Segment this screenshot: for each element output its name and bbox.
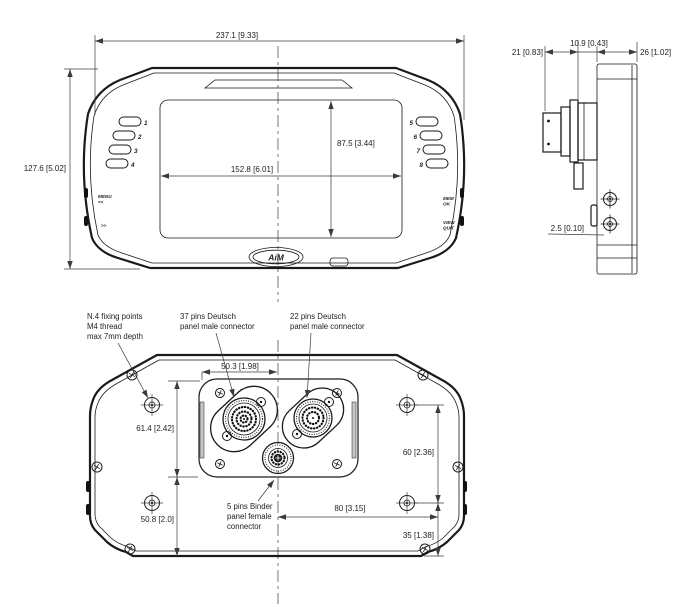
plate-screw (331, 387, 343, 399)
dim-fixing-right-horizontal: 80 [3.15] (334, 504, 365, 513)
svg-text:max 7mm depth: max 7mm depth (87, 332, 143, 341)
rear-dimensions: 50.3 [1.98] 61.4 [2.42] 50.8 [2.0] 60 [2… (136, 362, 444, 556)
fixing-point (141, 492, 163, 514)
plate-screw (331, 458, 343, 470)
bezel-label-quit: QUIT (443, 226, 455, 231)
technical-drawing: 1 2 3 4 5 6 7 8 MENU << >> MEM OK VIEW Q… (0, 0, 676, 607)
case-screw (125, 368, 139, 382)
front-dimensions: 237.1 [9.33] 127.6 [5.02] 152.8 [6.01] 8… (24, 31, 464, 269)
dim-overall-width: 237.1 [9.33] (216, 31, 258, 40)
bezel-label-menu-arrows: << (98, 200, 104, 205)
plate-screw (214, 387, 226, 399)
right-edge-button-icon (463, 504, 467, 515)
button-1-label: 1 (144, 120, 148, 127)
top-slot (205, 80, 352, 88)
button-8 (426, 159, 448, 168)
side-body (597, 64, 637, 274)
dim-fixing-bottom: 35 [1.38] (403, 531, 434, 540)
fixing-point (141, 394, 163, 416)
button-7 (423, 145, 445, 154)
svg-text:panel male connector: panel male connector (290, 322, 365, 331)
left-edge-button-icon (86, 481, 90, 492)
dim-connector-offset: 50.3 [1.98] (221, 362, 259, 371)
bezel-label-view: VIEW (443, 220, 455, 225)
left-edge-button-icon (86, 504, 90, 515)
light-sensor (330, 258, 348, 266)
bezel-label-ok: OK (443, 202, 451, 207)
svg-text:panel female: panel female (227, 512, 272, 521)
case-screw (418, 542, 432, 556)
bezel-label-menu: MENU (98, 194, 112, 199)
side-connector-profile (543, 100, 597, 189)
note-deutsch-37: 37 pins Deutsch (180, 312, 236, 321)
svg-text:M4 thread: M4 thread (87, 322, 122, 331)
dim-fixing-right-vertical: 60 [2.36] (403, 448, 434, 457)
svg-text:connector: connector (227, 522, 262, 531)
dim-fixing-upper: 61.4 [2.42] (136, 424, 174, 433)
bezel-label-next-arrows: >> (101, 223, 107, 228)
note-binder-5: 5 pins Binder (227, 502, 273, 511)
button-5 (416, 117, 438, 126)
button-3-label: 3 (134, 148, 138, 155)
button-3 (109, 145, 131, 154)
dim-side-mid: 10.9 [0.43] (570, 39, 608, 48)
aim-logo: AiM (249, 248, 303, 267)
button-5-label: 5 (409, 120, 413, 127)
front-view: 1 2 3 4 5 6 7 8 MENU << >> MEM OK VIEW Q… (84, 68, 464, 268)
button-2-label: 2 (137, 134, 142, 141)
right-edge-button-icon (460, 188, 464, 198)
display-screen (160, 100, 402, 238)
note-fixing-points: N.4 fixing points (87, 312, 143, 321)
case-screw (90, 460, 104, 474)
button-8-label: 8 (419, 162, 423, 169)
side-view (543, 64, 637, 274)
svg-text:panel male connector: panel male connector (180, 322, 255, 331)
dim-screen-width: 152.8 [6.01] (231, 165, 273, 174)
dim-screen-height: 87.5 [3.44] (337, 139, 375, 148)
front-inner-line (90, 73, 457, 263)
plate-side-strip (352, 402, 356, 458)
dim-side-back: 21 [0.83] (512, 48, 543, 57)
deutsch-37-connector (201, 377, 287, 462)
right-edge-button-icon (460, 216, 464, 226)
right-edge-button-icon (463, 481, 467, 492)
left-edge-button-icon (84, 216, 88, 226)
button-7-label: 7 (416, 148, 420, 155)
plate-screw (214, 458, 226, 470)
button-1 (119, 117, 141, 126)
side-edge-button (591, 205, 597, 226)
side-fixing-screw (601, 215, 620, 234)
technical-drawing-page: 1 2 3 4 5 6 7 8 MENU << >> MEM OK VIEW Q… (0, 0, 676, 607)
bezel-label-mem: MEM (443, 196, 454, 201)
button-6 (420, 131, 442, 140)
button-6-label: 6 (413, 134, 417, 141)
button-4 (106, 159, 128, 168)
note-deutsch-22: 22 pins Deutsch (290, 312, 346, 321)
left-edge-button-icon (84, 188, 88, 198)
dim-fixing-lower: 50.8 [2.0] (141, 515, 174, 524)
case-screw (416, 368, 430, 382)
plate-side-strip (200, 402, 204, 458)
dim-side-body: 26 [1.02] (640, 48, 671, 57)
binder-5-connector (263, 443, 294, 474)
side-fixing-screw (601, 190, 620, 209)
button-4-label: 4 (130, 162, 135, 169)
case-screw (123, 542, 137, 556)
case-screw (451, 460, 465, 474)
button-2 (113, 131, 135, 140)
dim-overall-height: 127.6 [5.02] (24, 164, 66, 173)
aim-logo-text: AiM (267, 253, 285, 263)
dim-side-tab: 2.5 [0.10] (551, 224, 584, 233)
